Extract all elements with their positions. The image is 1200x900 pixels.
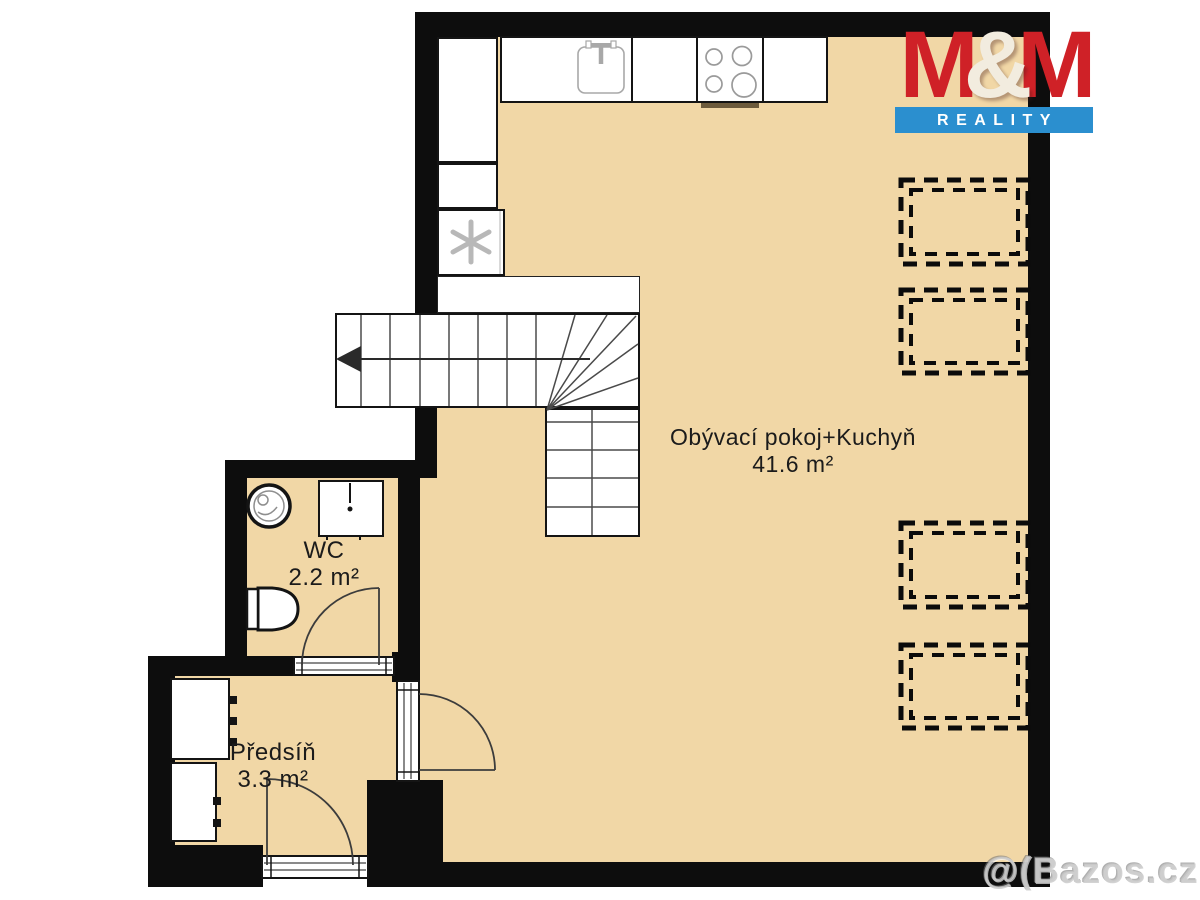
wall-wc-left [225, 460, 247, 656]
kitchen-tall-cabinet [437, 37, 498, 163]
wall-left-upper [415, 12, 437, 313]
stair-landing [437, 276, 640, 313]
wall-right [1028, 12, 1050, 887]
room-area: 2.2 m² [260, 564, 388, 591]
wall-wc-right [398, 460, 420, 682]
threshold-wc-door [294, 657, 394, 675]
stairs-lower-run [545, 408, 640, 537]
logo-ampersand: & [964, 18, 1033, 113]
room-name: Obývací pokoj+Kuchyň [670, 424, 916, 450]
stairs-upper-run [335, 313, 640, 408]
water-heater [318, 480, 384, 537]
wall-hallway-bottom [148, 845, 263, 887]
label-living-kitchen: Obývací pokoj+Kuchyň 41.6 m² [637, 424, 949, 478]
room-area: 41.6 m² [637, 451, 949, 478]
fridge [437, 209, 505, 276]
threshold-entrance-door [262, 856, 368, 878]
room-name: WC [304, 537, 345, 564]
label-hallway: Předsíň 3.3 m² [193, 739, 353, 793]
threshold-living-door [397, 681, 419, 781]
room-area: 3.3 m² [193, 766, 353, 793]
kitchen-cabinet-small [437, 163, 498, 209]
wall-wc-door-corner [392, 652, 420, 682]
stove [696, 36, 764, 103]
wall-entry-pillar [367, 780, 443, 887]
kitchen-counter [500, 36, 828, 103]
floorplan-canvas: Obývací pokoj+Kuchyň 41.6 m² WC 2.2 m² P… [0, 0, 1200, 900]
wall-bottom [380, 862, 1050, 887]
label-wc: WC 2.2 m² [260, 537, 388, 591]
room-name: Předsíň [230, 739, 316, 766]
floor-living-kitchen-lower [420, 478, 1028, 862]
mm-reality-logo: M & M [893, 18, 1103, 110]
bazos-watermark: @(Bazos.cz [982, 850, 1199, 892]
